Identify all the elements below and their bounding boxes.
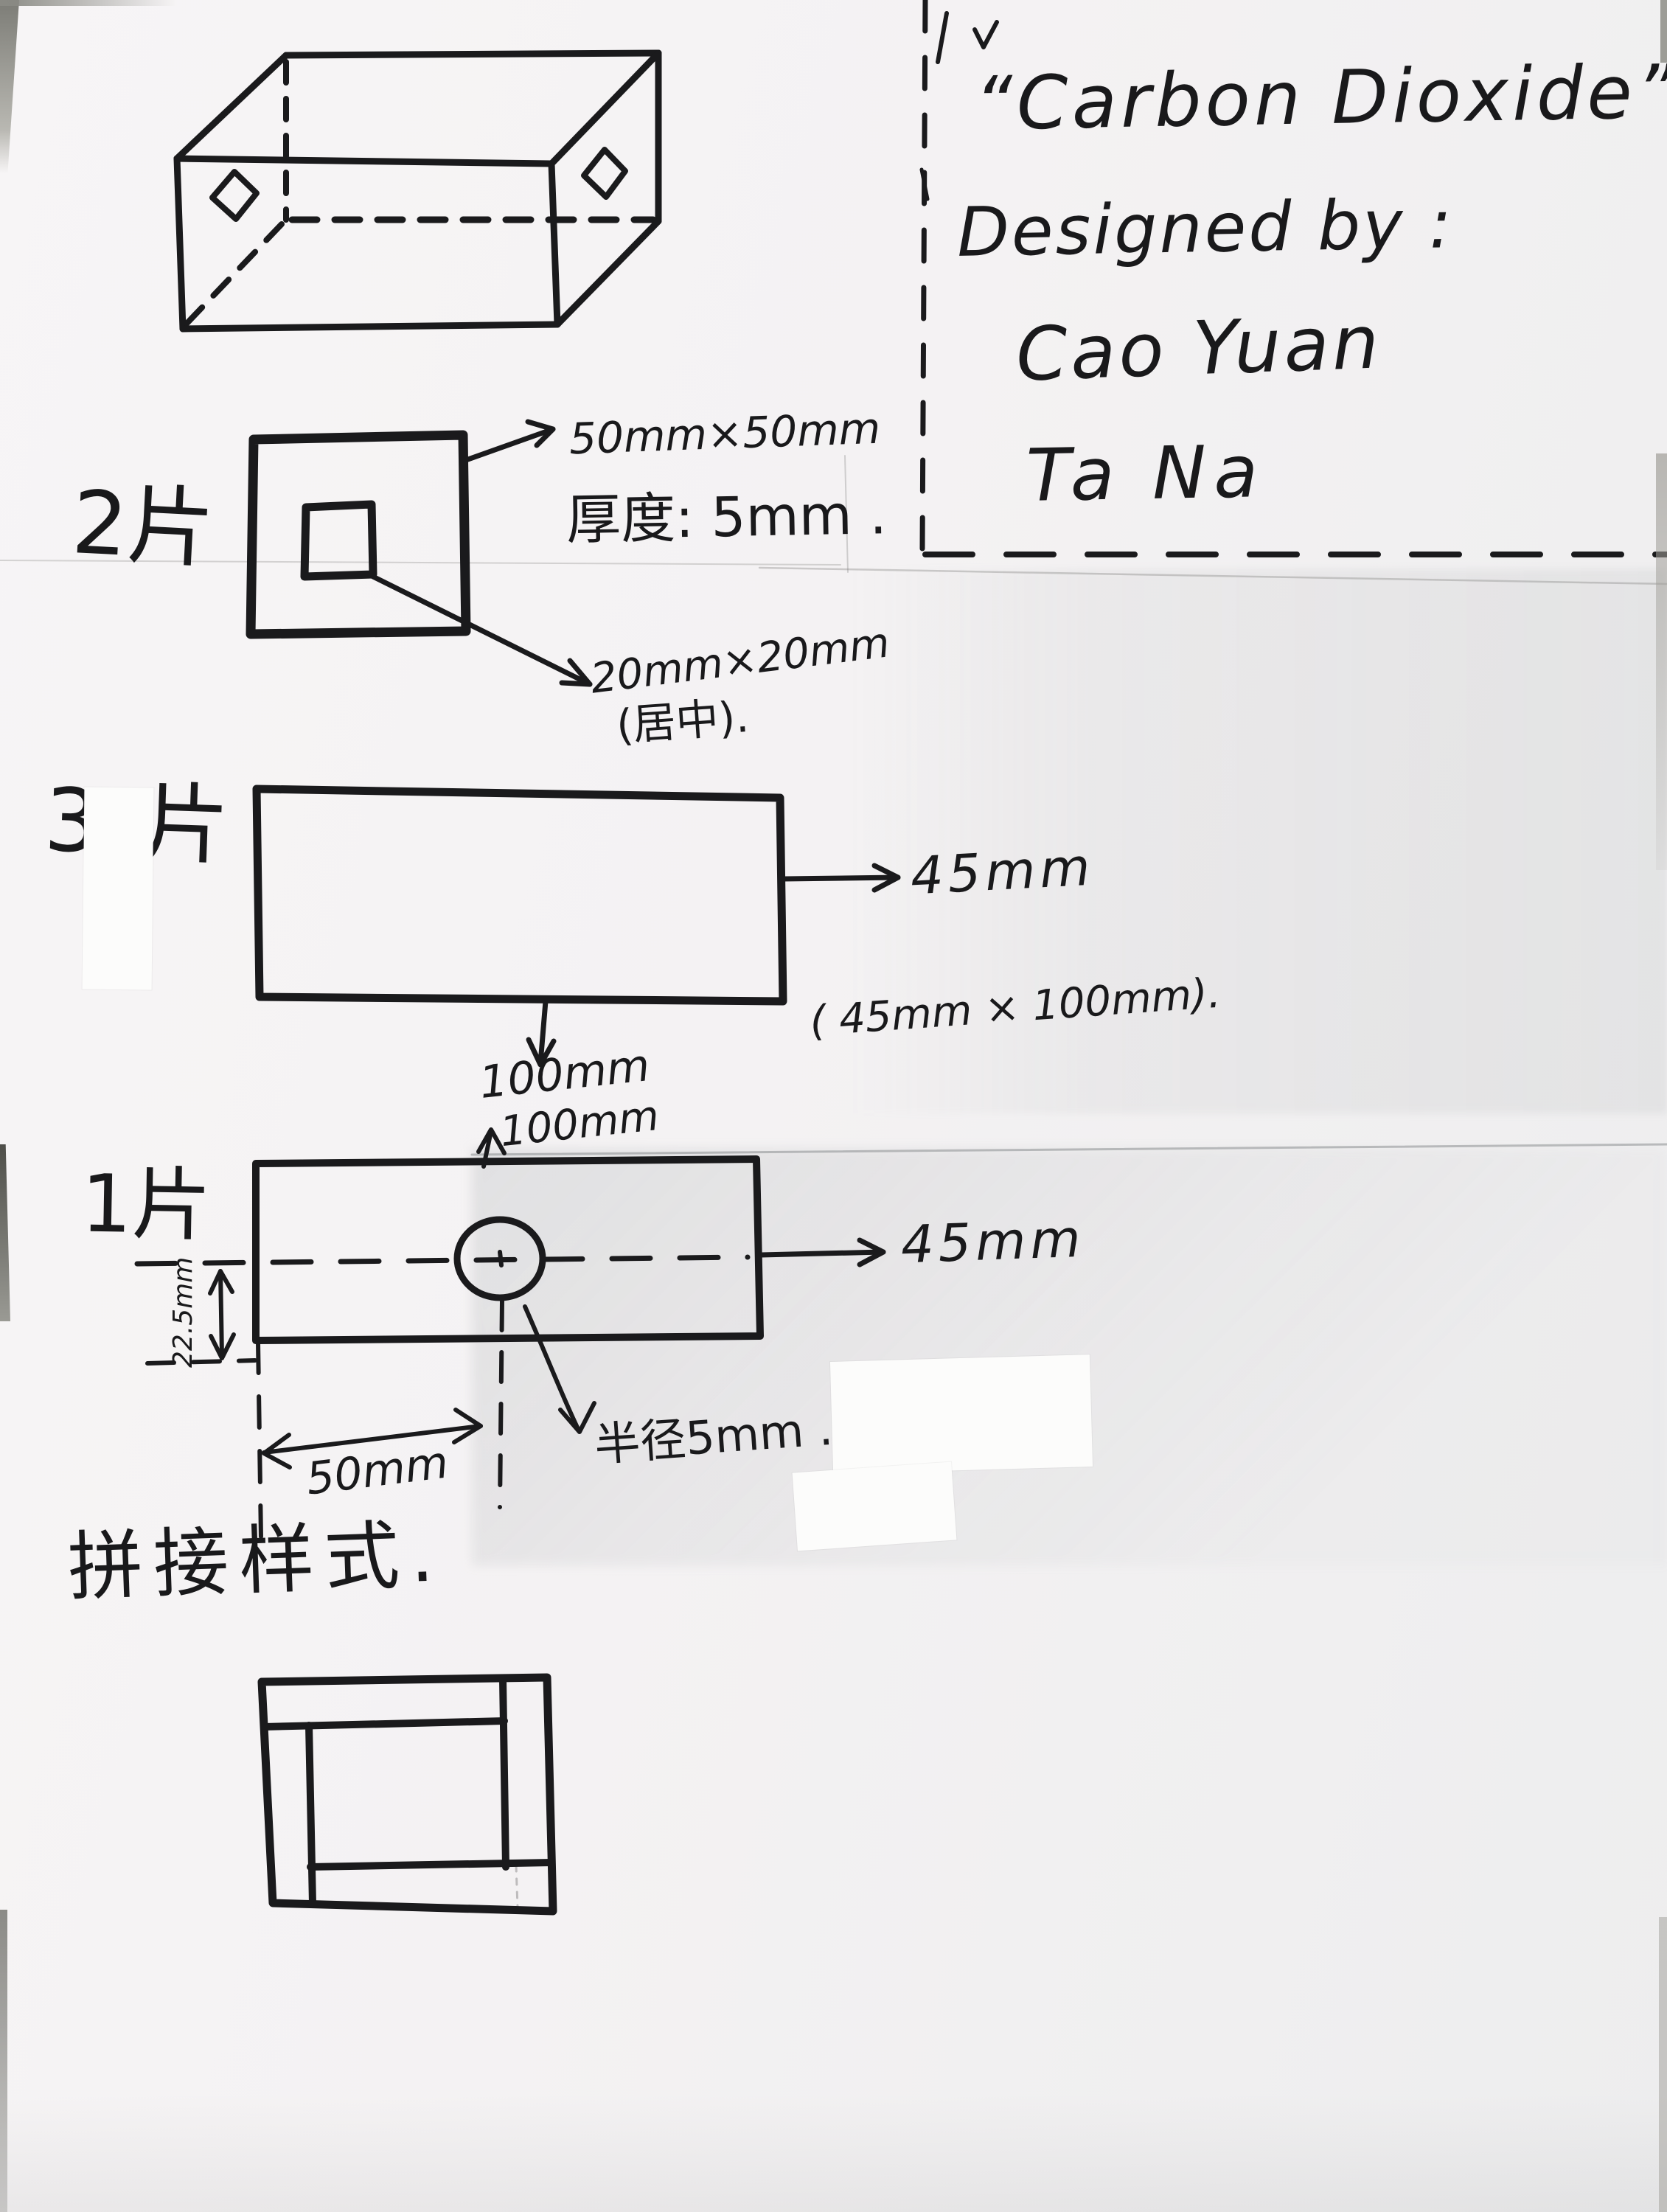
isometric-box-sketch — [177, 53, 658, 329]
correction-tape-patch — [83, 787, 154, 990]
piece1-sketch — [137, 1130, 883, 1538]
designer-name-1: Cao Yuan — [1015, 303, 1382, 393]
assembly-style-heading: 拼接样式. — [66, 1515, 445, 1607]
design-title: “Carbon Dioxide” — [974, 53, 1667, 143]
correction-tape-patch — [793, 1462, 957, 1551]
piece2-outer-size-label: 50mm×50mm — [568, 406, 881, 462]
piece1-half-height-label: 22.5mm — [170, 1257, 199, 1368]
designed-by-label: Designed by : — [956, 189, 1455, 268]
piece2-hole-centered-note: (居中). — [615, 695, 751, 748]
box-hole-side — [584, 150, 625, 197]
paper-sheet: “Carbon Dioxide” Designed by : Cao Yuan … — [0, 0, 1667, 2212]
piece2-thickness-label: 厚度: 5mm . — [565, 487, 887, 549]
piece2-sketch — [251, 422, 590, 684]
assembly-frame-sketch — [262, 1677, 553, 1911]
sketch-linework — [0, 0, 1667, 2212]
piece3-count-label: 3片 — [43, 775, 274, 874]
designer-name-2: Ta Na — [1026, 434, 1266, 515]
piece1-count-label: 1片 — [80, 1162, 212, 1248]
box-hole-front — [212, 172, 257, 219]
piece1-width-label: 45mm — [900, 1212, 1086, 1273]
piece3-width-label: 45mm — [909, 841, 1096, 904]
correction-tape-patch — [830, 1354, 1093, 1474]
piece3-sketch — [257, 789, 898, 1065]
piece2-count-label: 2片 — [70, 477, 217, 576]
